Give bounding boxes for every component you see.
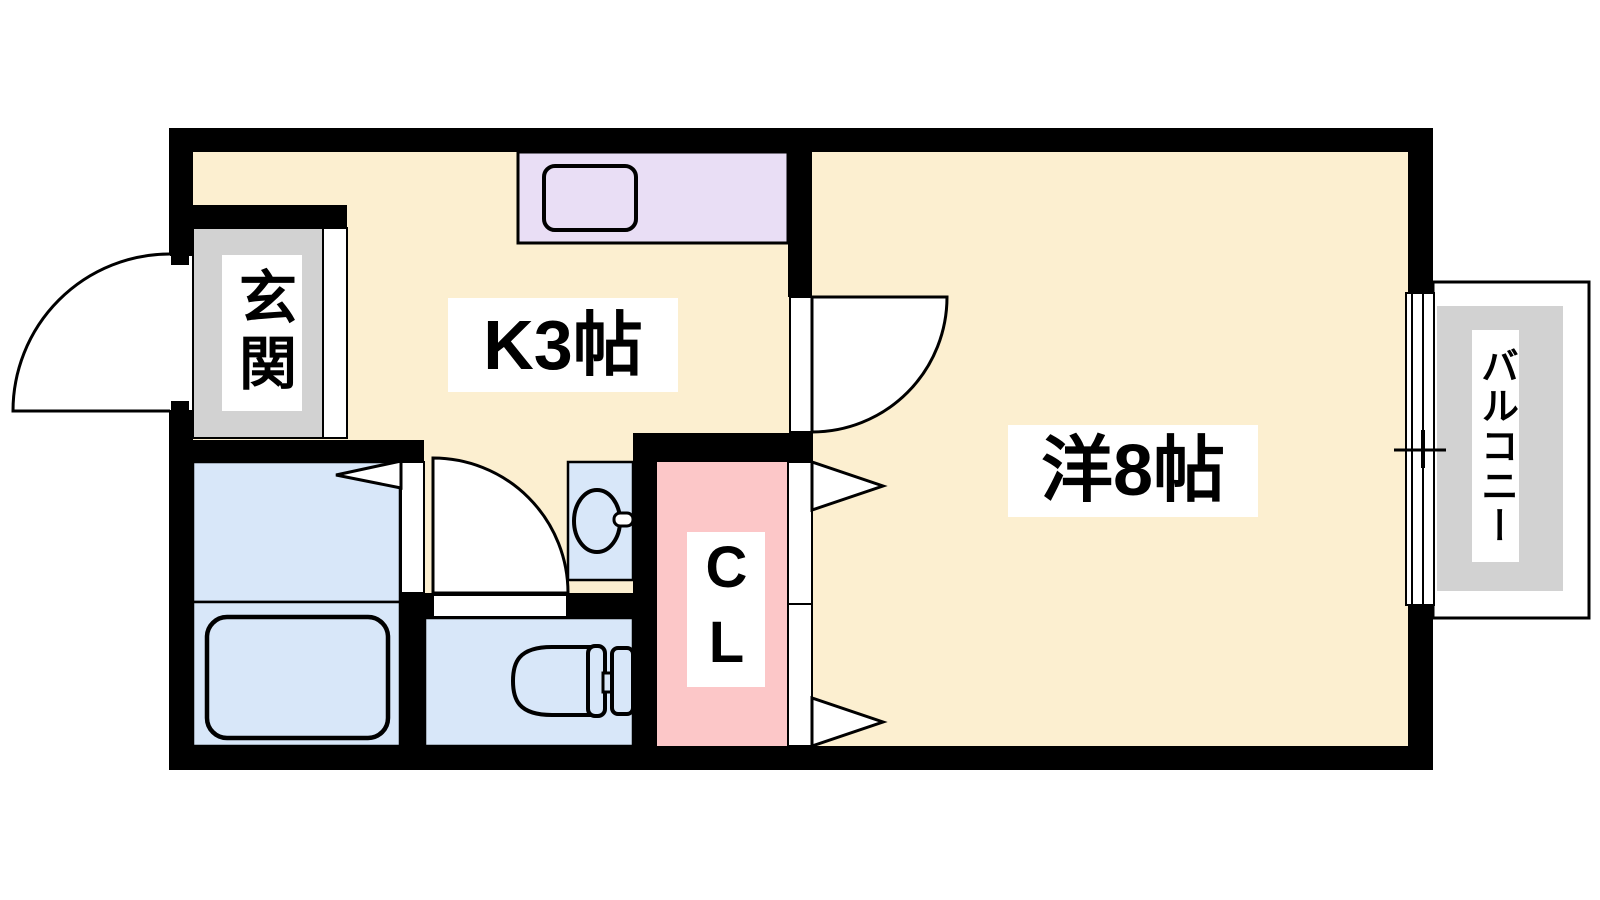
western-room-label: 洋8帖 <box>1008 425 1258 517</box>
entrance-door-opening <box>169 255 193 411</box>
washbasin-faucet <box>614 513 633 526</box>
entrance-door-jamb-bottom <box>171 401 189 411</box>
wall-below-entrance <box>169 440 424 462</box>
entrance-door-jamb-top <box>171 255 189 265</box>
wall-above-closet <box>633 433 813 462</box>
kitchen-label: K3帖 <box>448 298 678 392</box>
toilet-door-threshold <box>433 595 567 617</box>
wall-bath-toilet <box>400 618 425 746</box>
floor-plan: 玄関 K3帖 洋8帖 CL バルコニー <box>0 0 1600 900</box>
wall-south <box>169 746 1433 770</box>
closet-door-lower <box>788 604 812 746</box>
wall-west <box>169 128 193 770</box>
closet-door-upper <box>788 462 812 604</box>
entrance-label: 玄関 <box>222 255 302 411</box>
balcony-label: バルコニー <box>1472 330 1519 562</box>
toilet-tank <box>612 648 633 714</box>
washroom-door <box>401 462 424 593</box>
wall-toilet-corner <box>400 593 433 618</box>
wall-north <box>169 128 1433 152</box>
wall-above-entrance <box>193 205 347 228</box>
kitchen-sink <box>544 166 636 230</box>
bathtub <box>207 617 388 738</box>
wall-closet-left <box>633 462 657 746</box>
entrance-step <box>323 228 347 438</box>
wall-toilet-right <box>567 593 633 618</box>
entrance-door-swing <box>13 254 170 411</box>
wall-kitchen-mainroom <box>788 150 812 297</box>
closet-label: CL <box>687 532 765 687</box>
mainroom-door-opening <box>790 297 812 432</box>
toilet-bowl <box>513 647 590 715</box>
floor-plan-drawing <box>0 0 1600 900</box>
